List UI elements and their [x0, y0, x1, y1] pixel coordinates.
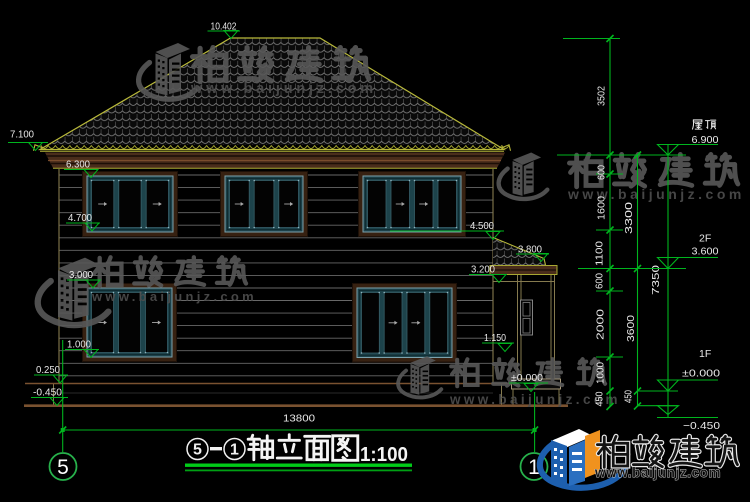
svg-text:7.100: 7.100	[10, 129, 34, 141]
svg-text:600: 600	[596, 165, 608, 180]
svg-text:3.000: 3.000	[69, 269, 93, 281]
svg-text:7350: 7350	[650, 265, 662, 295]
svg-text:450: 450	[623, 390, 635, 403]
svg-text:5: 5	[193, 442, 202, 459]
svg-text:3300: 3300	[623, 202, 635, 234]
svg-text:6.300: 6.300	[66, 159, 90, 171]
svg-text:1F: 1F	[699, 348, 711, 360]
svg-text:±0.000: ±0.000	[511, 372, 543, 384]
svg-text:3.600: 3.600	[692, 246, 719, 258]
svg-text:1600: 1600	[596, 196, 608, 220]
svg-text:www.baijunjz.com: www.baijunjz.com	[91, 289, 257, 304]
svg-text:13800: 13800	[283, 413, 315, 425]
svg-text:5: 5	[57, 456, 69, 479]
svg-text:6.900: 6.900	[692, 134, 719, 146]
svg-text:1000: 1000	[595, 362, 607, 384]
svg-text:-0.450: -0.450	[33, 387, 62, 399]
svg-text:450: 450	[594, 391, 606, 406]
svg-text:3.200: 3.200	[471, 264, 495, 276]
svg-text:4.500: 4.500	[470, 220, 494, 232]
svg-text:600: 600	[594, 273, 606, 289]
svg-text:0.250: 0.250	[36, 364, 60, 376]
svg-text:−0.450: −0.450	[683, 420, 720, 432]
svg-text:±0.000: ±0.000	[682, 368, 720, 380]
svg-text:1: 1	[230, 442, 239, 459]
svg-text:1100: 1100	[594, 241, 606, 266]
svg-text:www.baijunjz.com: www.baijunjz.com	[567, 186, 745, 202]
svg-text:1.150: 1.150	[484, 332, 506, 344]
svg-text:www.baijunjz.com: www.baijunjz.com	[594, 465, 721, 480]
svg-text:4.700: 4.700	[68, 212, 92, 224]
svg-text:3600: 3600	[625, 315, 637, 342]
svg-text:2000: 2000	[595, 309, 607, 340]
svg-text:2F: 2F	[699, 233, 711, 245]
svg-text:3502: 3502	[596, 86, 608, 106]
svg-text:www.baijunjz.com: www.baijunjz.com	[190, 81, 377, 97]
svg-text:1:100: 1:100	[360, 443, 408, 466]
svg-text:1.000: 1.000	[67, 339, 91, 351]
